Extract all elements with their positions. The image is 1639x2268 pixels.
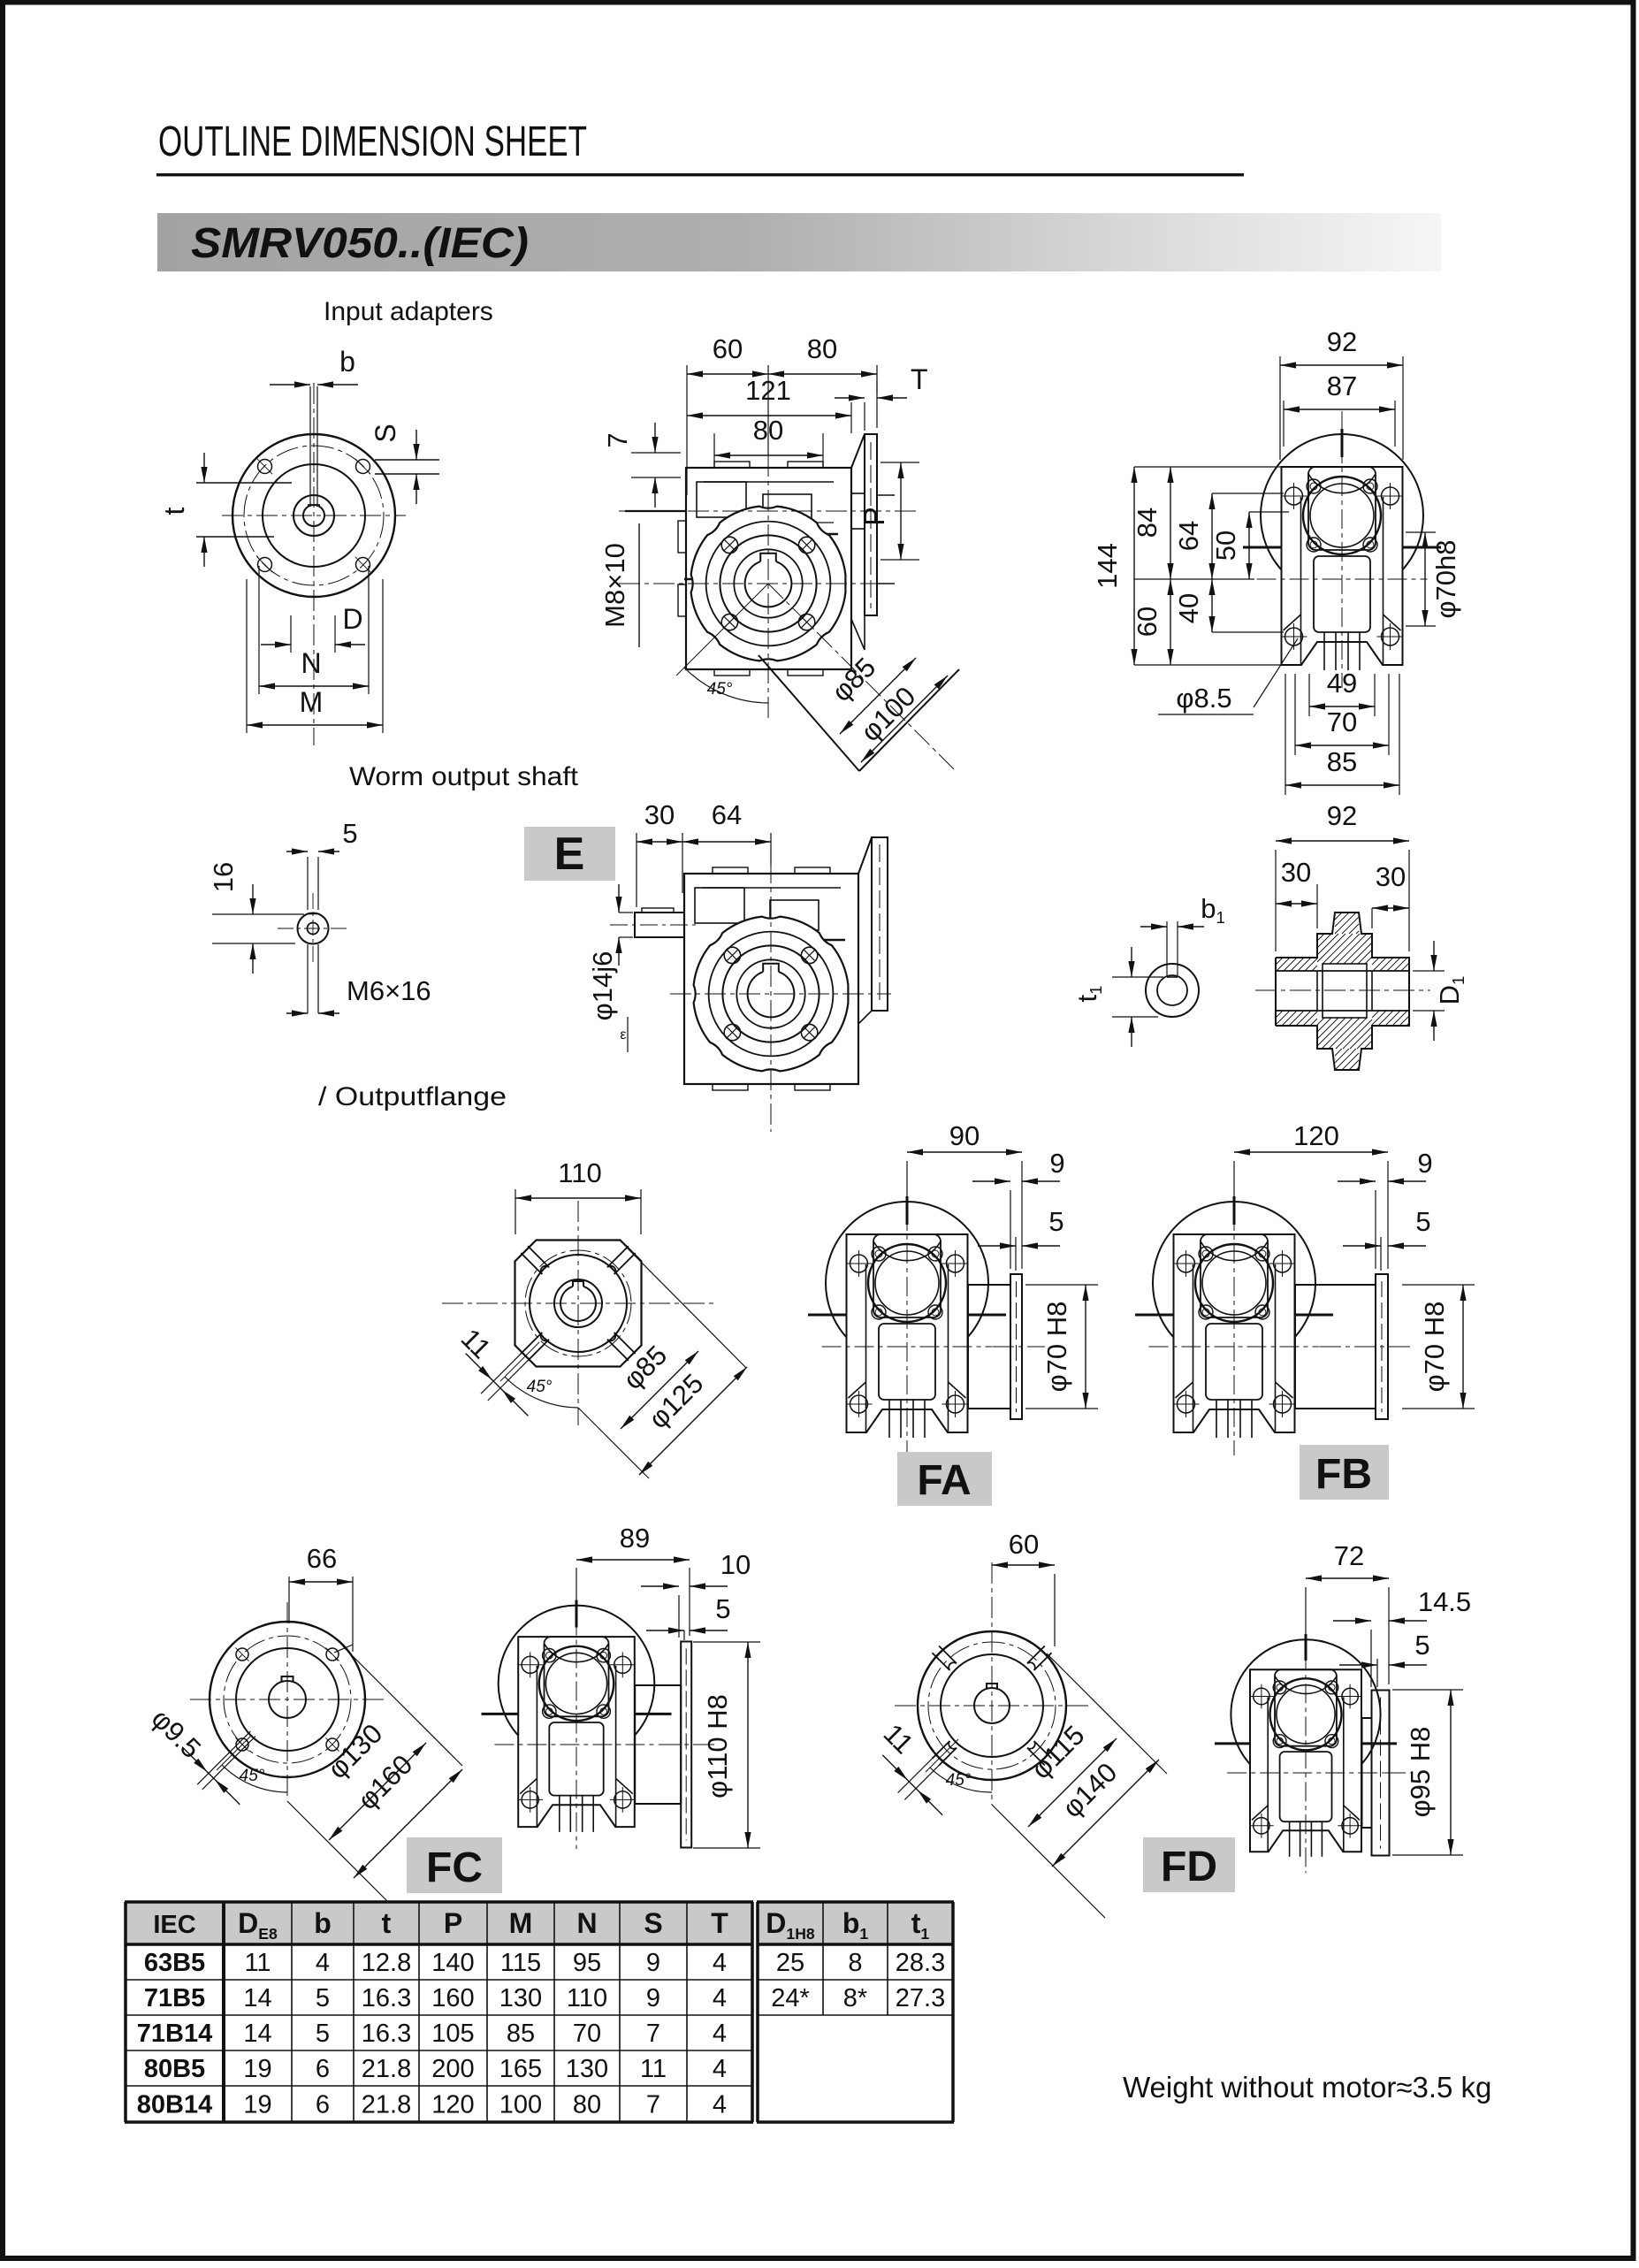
svg-text:φ95 H8: φ95 H8 (1405, 1727, 1436, 1818)
svg-text:110: 110 (558, 1157, 601, 1188)
svg-text:4: 4 (713, 2091, 727, 2119)
svg-text:b: b (314, 1907, 332, 1939)
svg-text:10: 10 (720, 1549, 751, 1580)
svg-text:87: 87 (1327, 370, 1357, 401)
svg-text:Worm output shaft: Worm output shaft (349, 762, 579, 791)
svg-text:25: 25 (776, 1949, 804, 1977)
svg-text:71B5: 71B5 (144, 1984, 205, 2012)
svg-text:Weight without motor≈3.5 kg: Weight without motor≈3.5 kg (1123, 2071, 1491, 2104)
svg-text:130: 130 (566, 2055, 608, 2083)
svg-text:165: 165 (499, 2055, 542, 2083)
svg-text:4: 4 (713, 2020, 727, 2048)
svg-text:130: 130 (499, 1984, 542, 2012)
svg-text:45°: 45° (707, 680, 733, 699)
svg-text:E: E (554, 829, 585, 880)
svg-text:64: 64 (712, 799, 742, 830)
svg-text:4: 4 (713, 2055, 727, 2083)
svg-text:160: 160 (431, 1984, 474, 2012)
svg-text:72: 72 (1334, 1540, 1364, 1571)
svg-text:64: 64 (1173, 521, 1204, 551)
svg-text:/ Outputflange: / Outputflange (318, 1082, 507, 1111)
svg-text:16.3: 16.3 (362, 1984, 411, 2012)
svg-text:D: D (342, 603, 362, 635)
svg-text:OUTLINE DIMENSION SHEET: OUTLINE DIMENSION SHEET (158, 118, 587, 165)
svg-text:M6×16: M6×16 (347, 975, 431, 1006)
svg-text:5: 5 (715, 1593, 730, 1624)
svg-text:6: 6 (316, 2055, 330, 2083)
svg-text:9: 9 (1049, 1148, 1064, 1179)
svg-text:80B5: 80B5 (144, 2055, 205, 2083)
svg-text:85: 85 (1327, 746, 1357, 777)
svg-text:71B14: 71B14 (137, 2020, 212, 2048)
svg-text:66: 66 (307, 1543, 337, 1574)
svg-text:110: 110 (567, 1984, 607, 2012)
svg-text:95: 95 (573, 1949, 601, 1977)
svg-text:M: M (509, 1907, 533, 1939)
svg-text:P: P (858, 507, 890, 525)
svg-text:T: T (711, 1907, 728, 1939)
svg-text:M8×10: M8×10 (599, 543, 630, 628)
svg-text:115: 115 (500, 1949, 541, 1977)
svg-text:60: 60 (1132, 607, 1163, 637)
svg-text:11: 11 (244, 1949, 271, 1977)
svg-text:90: 90 (949, 1120, 980, 1151)
svg-text:5: 5 (1048, 1206, 1063, 1237)
svg-text:IEC: IEC (153, 1911, 195, 1939)
svg-text:T: T (911, 363, 928, 395)
svg-text:21.8: 21.8 (362, 2091, 411, 2119)
svg-text:t: t (158, 507, 190, 515)
svg-text:t: t (382, 1907, 392, 1939)
svg-text:30: 30 (1376, 861, 1406, 892)
svg-text:N: N (301, 647, 321, 679)
svg-text:P: P (444, 1907, 462, 1939)
svg-text:4: 4 (713, 1949, 727, 1977)
svg-text:5: 5 (316, 1984, 330, 2012)
svg-text:63B5: 63B5 (144, 1949, 205, 1977)
svg-text:SMRV050..(IEC): SMRV050..(IEC) (191, 220, 529, 267)
svg-text:S: S (644, 1907, 662, 1939)
svg-text:80: 80 (807, 333, 837, 364)
svg-text:45°: 45° (527, 1378, 553, 1396)
svg-text:89: 89 (620, 1523, 650, 1554)
svg-text:4: 4 (713, 1984, 727, 2012)
svg-text:8: 8 (848, 1949, 862, 1977)
svg-text:9: 9 (646, 1949, 660, 1977)
svg-text:45°: 45° (240, 1767, 265, 1785)
svg-text:φ110 H8: φ110 H8 (702, 1694, 733, 1798)
svg-text:N: N (576, 1907, 597, 1939)
svg-text:5: 5 (1415, 1206, 1430, 1237)
svg-text:9: 9 (1417, 1148, 1432, 1179)
svg-text:92: 92 (1327, 800, 1357, 831)
svg-text:FC: FC (426, 1844, 483, 1891)
svg-text:60: 60 (1009, 1529, 1039, 1560)
svg-text:FD: FD (1161, 1844, 1217, 1890)
svg-text:φ14j6: φ14j6 (587, 951, 618, 1021)
svg-text:14.5: 14.5 (1418, 1586, 1471, 1617)
svg-text:14: 14 (243, 2020, 271, 2048)
svg-text:30: 30 (644, 799, 675, 830)
svg-text:Input adapters: Input adapters (324, 297, 493, 326)
svg-text:6: 6 (316, 2091, 330, 2119)
svg-text:φ8.5: φ8.5 (1176, 683, 1231, 714)
svg-text:4: 4 (316, 1949, 330, 1977)
svg-text:b: b (339, 346, 355, 378)
svg-text:16: 16 (208, 862, 239, 892)
svg-text:40: 40 (1173, 593, 1204, 623)
svg-text:80: 80 (753, 415, 783, 446)
svg-text:8*: 8* (843, 1984, 867, 2012)
svg-text:ε: ε (620, 1027, 626, 1042)
svg-text:200: 200 (431, 2055, 474, 2083)
svg-text:100: 100 (499, 2091, 542, 2119)
svg-text:120: 120 (1293, 1120, 1339, 1151)
svg-text:70: 70 (1327, 706, 1357, 737)
svg-text:φ70 H8: φ70 H8 (1041, 1302, 1072, 1393)
svg-text:92: 92 (1327, 326, 1357, 357)
svg-text:12.8: 12.8 (362, 1949, 411, 1977)
svg-text:21.8: 21.8 (362, 2055, 411, 2083)
svg-text:19: 19 (243, 2091, 271, 2119)
svg-text:105: 105 (431, 2020, 474, 2048)
svg-text:19: 19 (243, 2055, 271, 2083)
svg-text:7: 7 (602, 432, 633, 447)
svg-text:7: 7 (646, 2091, 660, 2119)
svg-text:80B14: 80B14 (137, 2091, 212, 2119)
svg-text:5: 5 (342, 818, 357, 849)
svg-text:140: 140 (431, 1949, 474, 1977)
svg-text:S: S (370, 424, 401, 442)
svg-text:28.3: 28.3 (896, 1949, 945, 1977)
svg-text:7: 7 (646, 2020, 660, 2048)
svg-text:FB: FB (1315, 1451, 1372, 1498)
svg-text:5: 5 (1414, 1630, 1429, 1661)
svg-text:FA: FA (917, 1457, 971, 1504)
svg-text:27.3: 27.3 (896, 1984, 945, 2012)
svg-text:49: 49 (1327, 668, 1357, 699)
svg-text:120: 120 (431, 2091, 474, 2119)
svg-text:5: 5 (316, 2020, 330, 2048)
svg-text:11: 11 (640, 2055, 667, 2083)
svg-text:50: 50 (1210, 531, 1241, 561)
svg-text:M: M (300, 686, 324, 718)
svg-text:30: 30 (1281, 857, 1311, 888)
svg-text:121: 121 (745, 375, 791, 406)
svg-text:80: 80 (573, 2091, 601, 2119)
svg-text:9: 9 (646, 1984, 660, 2012)
svg-text:84: 84 (1132, 508, 1163, 538)
svg-text:70: 70 (573, 2020, 601, 2048)
svg-text:45°: 45° (946, 1771, 972, 1790)
svg-text:144: 144 (1092, 543, 1123, 589)
svg-text:60: 60 (713, 333, 743, 364)
svg-text:φ70 H8: φ70 H8 (1419, 1302, 1450, 1393)
svg-text:24*: 24* (771, 1984, 810, 2012)
svg-text:14: 14 (243, 1984, 271, 2012)
svg-text:85: 85 (507, 2020, 535, 2048)
svg-text:φ70h8: φ70h8 (1430, 539, 1461, 618)
svg-text:16.3: 16.3 (362, 2020, 411, 2048)
